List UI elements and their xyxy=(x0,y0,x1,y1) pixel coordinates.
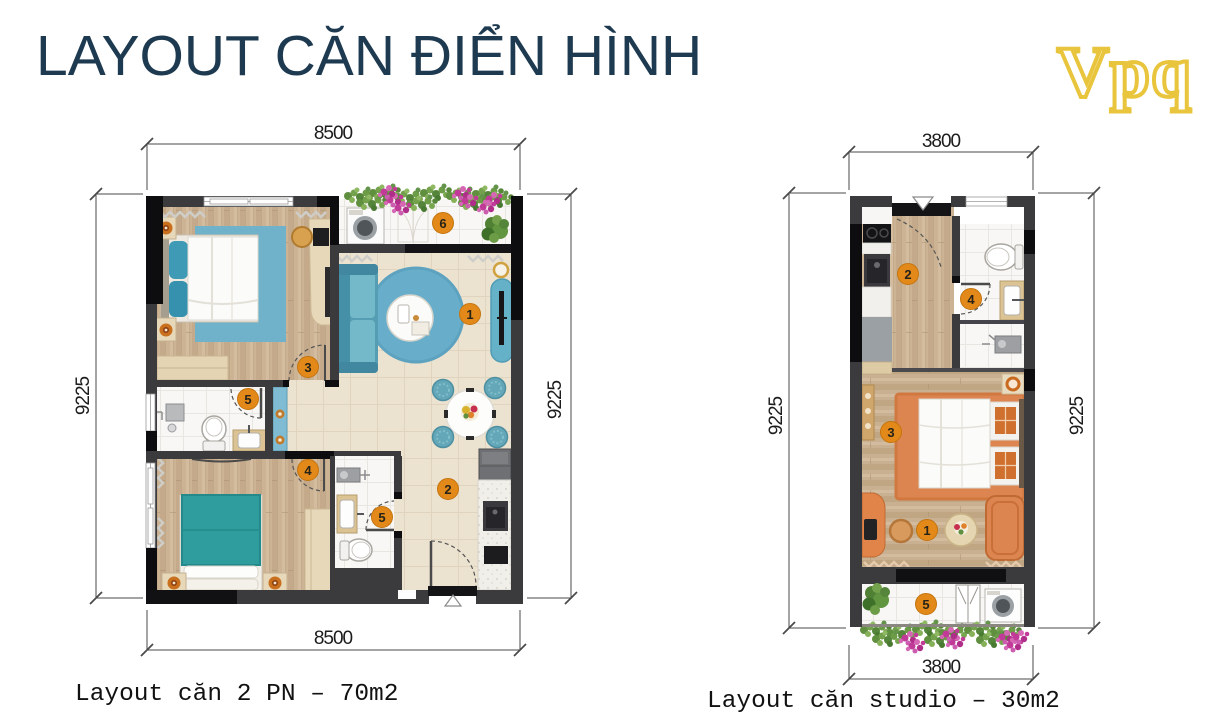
svg-text:1: 1 xyxy=(923,523,930,538)
svg-text:8500: 8500 xyxy=(314,628,353,649)
svg-text:3: 3 xyxy=(304,360,311,375)
svg-text:6: 6 xyxy=(439,216,446,231)
svg-text:5: 5 xyxy=(922,597,929,612)
svg-text:4: 4 xyxy=(967,292,975,307)
svg-text:2: 2 xyxy=(444,482,451,497)
svg-text:4: 4 xyxy=(304,463,312,478)
svg-text:3: 3 xyxy=(887,425,894,440)
svg-text:3800: 3800 xyxy=(922,131,961,152)
svg-text:8500: 8500 xyxy=(314,123,353,144)
svg-text:9225: 9225 xyxy=(766,396,787,435)
svg-text:9225: 9225 xyxy=(1067,396,1088,435)
svg-text:3800: 3800 xyxy=(922,657,961,678)
svg-text:5: 5 xyxy=(378,510,385,525)
svg-text:5: 5 xyxy=(244,392,251,407)
svg-text:9225: 9225 xyxy=(73,376,94,415)
svg-text:1: 1 xyxy=(466,307,473,322)
svg-text:9225: 9225 xyxy=(545,380,566,419)
svg-text:2: 2 xyxy=(904,267,911,282)
